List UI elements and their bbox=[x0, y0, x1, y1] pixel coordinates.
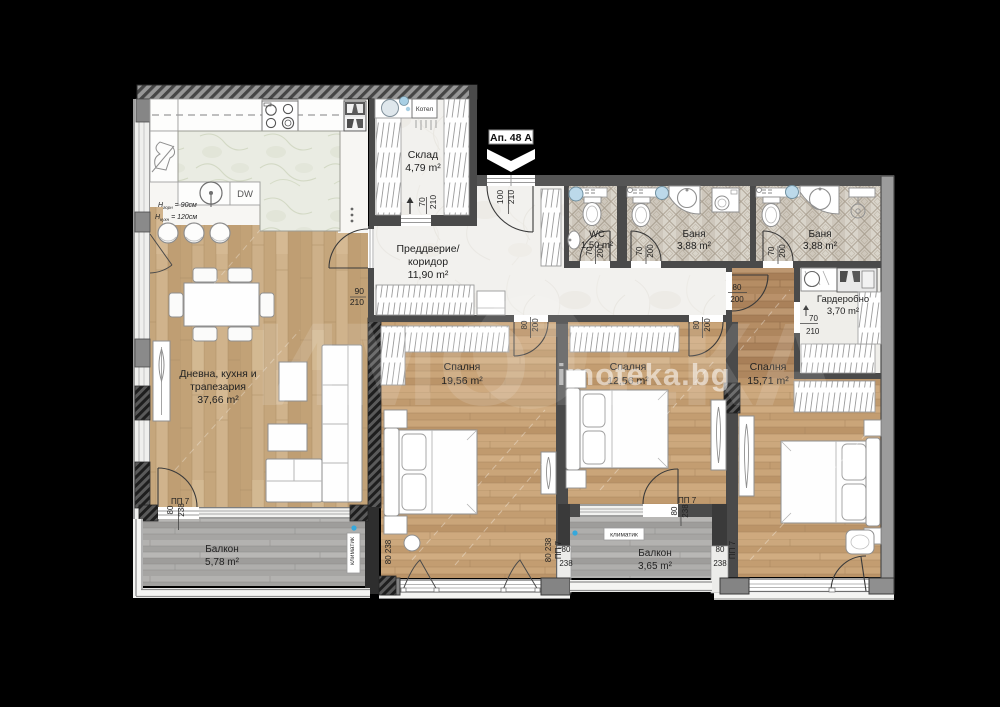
svg-text:80 238: 80 238 bbox=[544, 537, 553, 562]
svg-text:коридор: коридор bbox=[408, 256, 448, 268]
svg-text:200: 200 bbox=[703, 318, 712, 332]
svg-text:210: 210 bbox=[350, 297, 364, 307]
svg-text:Преддверие/: Преддверие/ bbox=[396, 243, 459, 255]
svg-text:DW: DW bbox=[237, 189, 253, 200]
svg-text:200: 200 bbox=[531, 318, 540, 332]
svg-text:4,79 m²: 4,79 m² bbox=[405, 162, 441, 174]
svg-text:80: 80 bbox=[733, 283, 742, 292]
svg-text:80: 80 bbox=[716, 545, 725, 554]
svg-text:ПП 7: ПП 7 bbox=[678, 496, 697, 505]
svg-text:80: 80 bbox=[520, 320, 529, 329]
svg-text:80: 80 bbox=[692, 320, 701, 329]
svg-text:3,88 m²: 3,88 m² bbox=[677, 241, 712, 252]
svg-text:70: 70 bbox=[767, 246, 776, 255]
svg-text:Гардеробно: Гардеробно bbox=[817, 294, 869, 305]
svg-text:19,56 m²: 19,56 m² bbox=[441, 375, 483, 387]
svg-text:Балкон: Балкон bbox=[205, 544, 239, 555]
svg-text:3,70 m²: 3,70 m² bbox=[827, 306, 859, 317]
svg-text:238: 238 bbox=[681, 504, 690, 518]
svg-text:210: 210 bbox=[506, 190, 516, 204]
svg-text:70: 70 bbox=[585, 246, 594, 255]
svg-text:Дневна, кухня и: Дневна, кухня и bbox=[179, 368, 256, 380]
svg-text:ПП 7: ПП 7 bbox=[554, 540, 563, 559]
svg-text:200: 200 bbox=[778, 244, 787, 258]
svg-text:WC: WC bbox=[589, 229, 605, 240]
svg-text:Баня: Баня bbox=[808, 229, 831, 240]
svg-text:200: 200 bbox=[730, 295, 744, 304]
svg-text:210: 210 bbox=[428, 195, 438, 209]
svg-text:11,90 m²: 11,90 m² bbox=[408, 269, 449, 281]
svg-text:70: 70 bbox=[417, 197, 427, 207]
svg-text:12,56 m²: 12,56 m² bbox=[607, 375, 649, 387]
svg-text:Котел: Котел bbox=[416, 106, 434, 113]
svg-text:238: 238 bbox=[559, 559, 573, 568]
svg-text:3,88 m²: 3,88 m² bbox=[803, 241, 838, 252]
svg-text:210: 210 bbox=[806, 327, 820, 336]
svg-text:70: 70 bbox=[635, 246, 644, 255]
svg-text:ПП 7: ПП 7 bbox=[728, 540, 737, 559]
svg-text:Балкон: Балкон bbox=[638, 548, 672, 559]
svg-text:70: 70 bbox=[809, 314, 818, 323]
svg-text:15,71 m²: 15,71 m² bbox=[747, 375, 789, 387]
svg-text:80: 80 bbox=[670, 506, 679, 515]
svg-text:238: 238 bbox=[713, 559, 727, 568]
svg-text:100: 100 bbox=[495, 190, 505, 204]
svg-text:37,66 m²: 37,66 m² bbox=[197, 394, 239, 406]
svg-text:климатик: климатик bbox=[349, 537, 356, 565]
svg-text:Баня: Баня bbox=[682, 229, 705, 240]
svg-text:климатик: климатик bbox=[610, 532, 638, 539]
svg-text:Спалня: Спалня bbox=[750, 361, 787, 373]
svg-text:200: 200 bbox=[596, 244, 605, 258]
svg-text:Склад: Склад bbox=[408, 149, 438, 161]
svg-text:80 238: 80 238 bbox=[384, 539, 393, 564]
svg-text:Спалня: Спалня bbox=[444, 361, 481, 373]
svg-text:Спалня: Спалня bbox=[610, 361, 647, 373]
svg-text:5,78 m²: 5,78 m² bbox=[205, 557, 240, 568]
svg-text:200: 200 bbox=[646, 244, 655, 258]
svg-text:3,65 m²: 3,65 m² bbox=[638, 561, 673, 572]
svg-text:80: 80 bbox=[166, 505, 175, 514]
svg-text:Ап. 48 А: Ап. 48 А bbox=[490, 132, 532, 144]
svg-text:90: 90 bbox=[355, 286, 365, 296]
svg-text:трапезария: трапезария bbox=[190, 381, 246, 393]
